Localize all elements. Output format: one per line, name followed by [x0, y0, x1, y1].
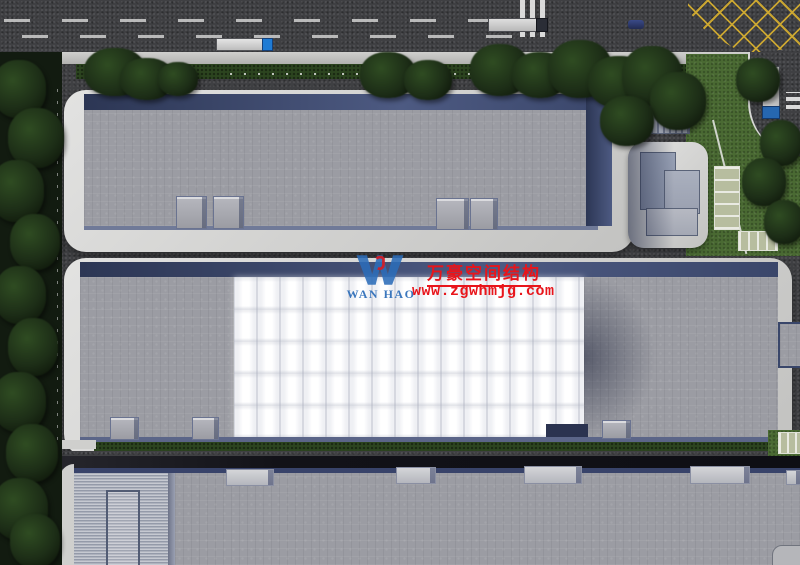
- middle-rooftop-box-3: [602, 420, 631, 439]
- gatehouse-shadow: [628, 142, 674, 248]
- aerial-render-canvas: WAN HAO 万豪空间结构 www.zgwhmjg.com: [0, 0, 800, 565]
- truck-cab-center: [536, 18, 548, 32]
- bottom-roof-divider: [168, 473, 175, 565]
- rooftop-access-box-1: [176, 196, 207, 229]
- tree: [742, 158, 786, 206]
- lane-marking-row1: [4, 19, 516, 22]
- bottom-rooftop-vent-2: [396, 467, 436, 484]
- top-road: [0, 0, 800, 52]
- tree: [650, 72, 706, 130]
- truck-cab-west: [262, 38, 273, 51]
- tree: [0, 266, 46, 324]
- tree: [404, 60, 452, 100]
- middle-building-hedge: [94, 442, 794, 451]
- rooftop-access-box-2: [213, 196, 244, 229]
- bottom-roof-ridge: [106, 490, 140, 565]
- rooftop-access-box-3: [436, 198, 469, 230]
- rooftop-access-box-4: [470, 198, 498, 230]
- tree: [10, 214, 60, 270]
- tree: [6, 424, 58, 482]
- middle-building-east-bump: [778, 322, 800, 368]
- tree: [0, 372, 46, 432]
- bottom-building-roof-tiled: [175, 473, 800, 565]
- parking-stalls-southeast: [778, 432, 800, 454]
- middle-rooftop-box-2: [192, 417, 219, 440]
- bottom-rooftop-vent-3: [524, 466, 582, 484]
- truck-cab-right: [762, 106, 780, 119]
- watermark: WAN HAO 万豪空间结构 www.zgwhmjg.com: [344, 250, 604, 306]
- truck-trailer-center: [488, 18, 538, 32]
- car-blue: [628, 20, 644, 29]
- tree: [736, 58, 780, 102]
- middle-rooftop-box-1: [110, 417, 139, 440]
- southeast-structure: [772, 545, 800, 565]
- bottom-rooftop-vent-4: [690, 466, 750, 484]
- bottom-rooftop-vent-5: [786, 470, 800, 485]
- middle-building-roof-west: [80, 277, 234, 438]
- tree: [158, 62, 198, 96]
- watermark-logo-text: WAN HAO: [346, 287, 416, 302]
- upper-building-roof: [84, 110, 598, 226]
- bottom-building-west-curb: [60, 464, 74, 565]
- watermark-website-url: www.zgwhmjg.com: [412, 283, 555, 300]
- tree: [8, 318, 58, 376]
- tree: [8, 108, 64, 168]
- upper-building-south-wall: [84, 226, 598, 230]
- parking-stalls-east-1: [714, 166, 740, 230]
- truck-trailer-west: [216, 38, 264, 51]
- tree: [764, 200, 800, 244]
- crosswalk-right: [786, 92, 800, 109]
- tree: [10, 514, 60, 565]
- tree: [0, 160, 44, 222]
- bottom-rooftop-vent-1: [226, 469, 274, 486]
- tree: [600, 96, 654, 146]
